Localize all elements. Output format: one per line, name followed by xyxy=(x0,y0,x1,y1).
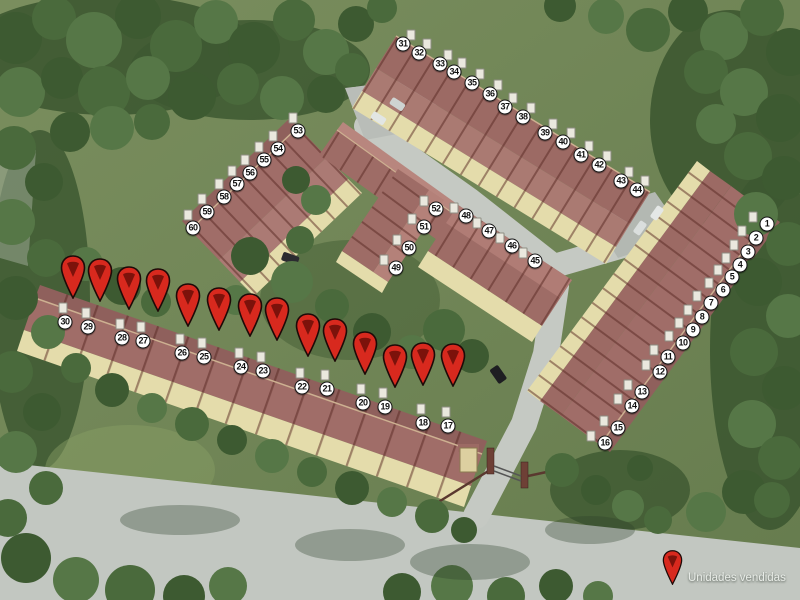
sold-pin xyxy=(87,258,113,307)
unit-badge-14: 14 xyxy=(625,399,640,414)
roof-vent xyxy=(289,113,298,124)
roof-vent xyxy=(255,142,264,153)
unit-badge-15: 15 xyxy=(611,421,626,436)
unit-badge-22: 22 xyxy=(295,380,310,395)
roof-vent xyxy=(269,131,278,142)
roof-vent xyxy=(665,331,674,342)
roof-vent xyxy=(442,407,451,418)
unit-badge-6: 6 xyxy=(716,283,731,298)
unit-badge-7: 7 xyxy=(704,296,719,311)
unit-badge-42: 42 xyxy=(592,158,607,173)
roof-vent xyxy=(450,203,459,214)
sold-pin xyxy=(60,255,86,304)
roof-vent xyxy=(380,255,389,266)
unit-badge-12: 12 xyxy=(653,365,668,380)
roof-vent xyxy=(519,248,528,259)
sold-pin xyxy=(237,293,263,342)
unit-badge-5: 5 xyxy=(725,270,740,285)
roof-vent xyxy=(420,196,429,207)
roof-vent xyxy=(198,338,207,349)
unit-badge-55: 55 xyxy=(257,153,272,168)
roof-vent xyxy=(357,384,366,395)
roof-vent xyxy=(642,360,651,371)
site-plan-render: 3029282726252423222120191817313233343536… xyxy=(0,0,800,600)
unit-badge-35: 35 xyxy=(465,76,480,91)
unit-badge-50: 50 xyxy=(402,241,417,256)
legend-label: Unidades vendidas xyxy=(688,572,786,590)
unit-badge-43: 43 xyxy=(614,174,629,189)
roof-vent xyxy=(82,308,91,319)
sold-pin xyxy=(382,344,408,393)
unit-badge-25: 25 xyxy=(197,350,212,365)
unit-badge-58: 58 xyxy=(217,190,232,205)
unit-badge-34: 34 xyxy=(447,65,462,80)
unit-badge-17: 17 xyxy=(441,419,456,434)
unit-badge-47: 47 xyxy=(482,224,497,239)
unit-badge-2: 2 xyxy=(749,231,764,246)
unit-badge-45: 45 xyxy=(528,254,543,269)
sold-pin xyxy=(145,268,171,317)
unit-badge-56: 56 xyxy=(243,166,258,181)
unit-badge-1: 1 xyxy=(760,217,775,232)
sold-pin xyxy=(352,331,378,380)
unit-badge-54: 54 xyxy=(271,142,286,157)
unit-badge-51: 51 xyxy=(417,220,432,235)
unit-badge-41: 41 xyxy=(574,148,589,163)
unit-badge-11: 11 xyxy=(661,350,676,365)
roof-vent xyxy=(235,348,244,359)
roof-vent xyxy=(321,370,330,381)
unit-badge-23: 23 xyxy=(256,364,271,379)
sold-pin xyxy=(206,287,232,336)
roof-vent xyxy=(705,278,714,289)
roof-vent xyxy=(600,416,609,427)
unit-badge-8: 8 xyxy=(695,310,710,325)
unit-badge-48: 48 xyxy=(459,209,474,224)
unit-badge-44: 44 xyxy=(630,183,645,198)
roof-vent xyxy=(116,319,125,330)
roof-vent xyxy=(176,334,185,345)
roof-vent xyxy=(693,291,702,302)
unit-badge-37: 37 xyxy=(498,100,513,115)
roof-vent xyxy=(257,352,266,363)
unit-badge-36: 36 xyxy=(483,87,498,102)
roof-vent xyxy=(738,226,747,237)
roof-vent xyxy=(473,218,482,229)
unit-badge-13: 13 xyxy=(635,385,650,400)
unit-badge-21: 21 xyxy=(320,382,335,397)
roof-vent xyxy=(587,431,596,442)
roof-vent xyxy=(749,212,758,223)
roof-vent xyxy=(614,394,623,405)
roof-vent xyxy=(241,155,250,166)
unit-badge-38: 38 xyxy=(516,110,531,125)
unit-badge-30: 30 xyxy=(58,315,73,330)
roof-vent xyxy=(296,368,305,379)
roof-vent xyxy=(408,214,417,225)
sold-pin-icon xyxy=(662,550,683,590)
roof-vent xyxy=(730,240,739,251)
unit-badge-16: 16 xyxy=(598,436,613,451)
roof-vent xyxy=(624,380,633,391)
roof-vent xyxy=(496,233,505,244)
roof-vent xyxy=(137,322,146,333)
unit-badge-60: 60 xyxy=(186,221,201,236)
unit-badge-18: 18 xyxy=(416,416,431,431)
unit-badge-39: 39 xyxy=(538,126,553,141)
sold-pin xyxy=(116,266,142,315)
roof-vent xyxy=(650,345,659,356)
unit-badge-20: 20 xyxy=(356,396,371,411)
roof-vent xyxy=(722,253,731,264)
unit-badge-9: 9 xyxy=(686,323,701,338)
unit-badge-24: 24 xyxy=(234,360,249,375)
sold-pin xyxy=(440,343,466,392)
roof-vent xyxy=(198,194,207,205)
roof-vent xyxy=(684,305,693,316)
sold-pin xyxy=(264,297,290,346)
unit-badge-32: 32 xyxy=(412,46,427,61)
unit-badge-26: 26 xyxy=(175,346,190,361)
roof-vent xyxy=(184,210,193,221)
roof-vent xyxy=(59,303,68,314)
legend: Unidades vendidas xyxy=(662,550,786,590)
unit-badge-52: 52 xyxy=(429,202,444,217)
sold-pin xyxy=(322,318,348,367)
roof-vent xyxy=(228,166,237,177)
unit-badge-28: 28 xyxy=(115,331,130,346)
roof-vent xyxy=(417,404,426,415)
unit-badge-46: 46 xyxy=(505,239,520,254)
unit-badge-27: 27 xyxy=(136,334,151,349)
unit-badge-33: 33 xyxy=(433,57,448,72)
sold-pin xyxy=(295,313,321,362)
unit-badge-49: 49 xyxy=(389,261,404,276)
unit-badge-10: 10 xyxy=(676,336,691,351)
unit-badge-53: 53 xyxy=(291,124,306,139)
roof-vent xyxy=(714,265,723,276)
unit-badge-19: 19 xyxy=(378,400,393,415)
unit-badge-29: 29 xyxy=(81,320,96,335)
unit-badge-57: 57 xyxy=(230,177,245,192)
sold-pin xyxy=(410,342,436,391)
roof-vent xyxy=(675,318,684,329)
roof-vent xyxy=(215,179,224,190)
unit-badge-59: 59 xyxy=(200,205,215,220)
unit-badge-31: 31 xyxy=(396,37,411,52)
roof-vent xyxy=(393,235,402,246)
sold-pin xyxy=(175,283,201,332)
unit-badge-40: 40 xyxy=(556,135,571,150)
